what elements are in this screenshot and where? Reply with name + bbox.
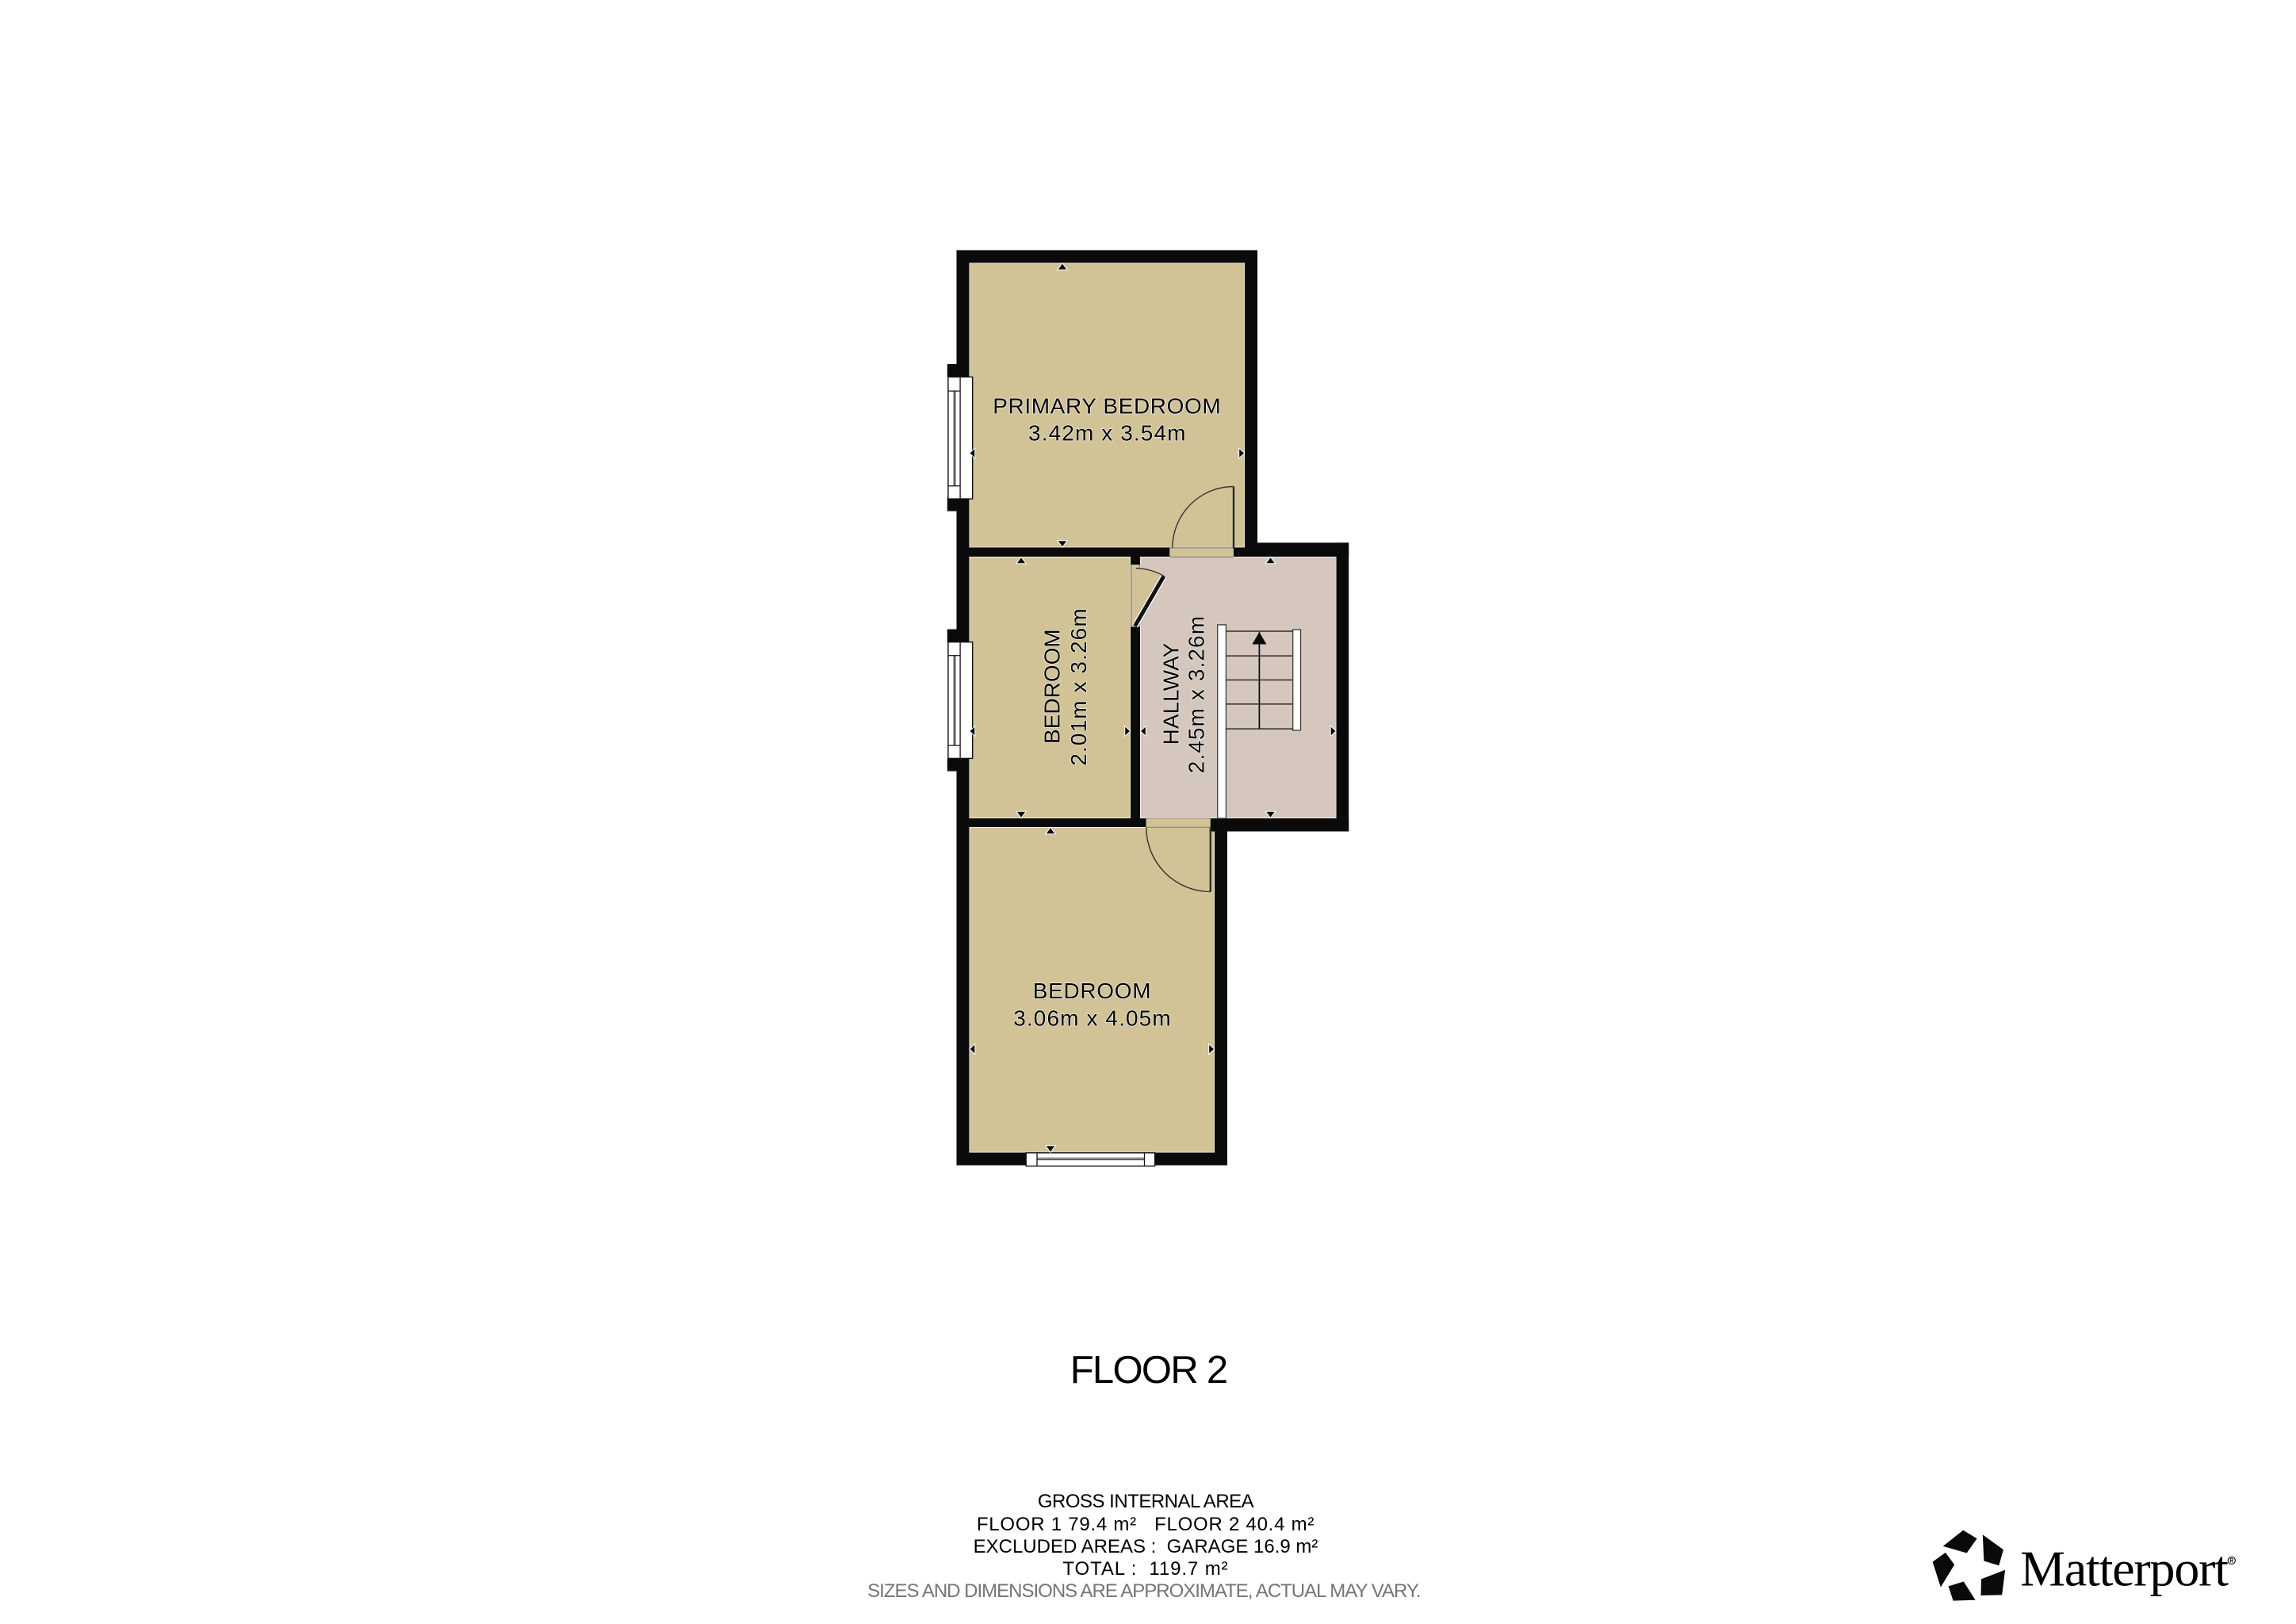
- svg-text:Matterport: Matterport: [2020, 1540, 2229, 1596]
- svg-text:SIZES AND DIMENSIONS ARE APPRO: SIZES AND DIMENSIONS ARE APPROXIMATE, AC…: [867, 1580, 1420, 1602]
- svg-text:GROSS INTERNAL AREA: GROSS INTERNAL AREA: [1038, 1491, 1254, 1512]
- svg-text:HALLWAY: HALLWAY: [1158, 642, 1183, 745]
- svg-text:FLOOR 2: FLOOR 2: [1070, 1349, 1227, 1392]
- svg-text:3.06m x 4.05m: 3.06m x 4.05m: [1013, 1006, 1172, 1031]
- svg-text:3.42m x 3.54m: 3.42m x 3.54m: [1028, 420, 1187, 445]
- svg-text:PRIMARY BEDROOM: PRIMARY BEDROOM: [993, 393, 1221, 418]
- svg-text:FLOOR 1 79.4 m² FLOOR 2 40.4: FLOOR 1 79.4 m² FLOOR 2 40.4 m²: [977, 1514, 1314, 1535]
- svg-text:BEDROOM: BEDROOM: [1033, 979, 1152, 1003]
- svg-text:TOTAL : 119.7 m²: TOTAL : 119.7 m²: [1062, 1558, 1228, 1580]
- svg-text:2.01m x 3.26m: 2.01m x 3.26m: [1066, 607, 1091, 766]
- svg-text:2.45m x 3.26m: 2.45m x 3.26m: [1184, 615, 1208, 774]
- svg-text:EXCLUDED AREAS : GARAGE 16.9: EXCLUDED AREAS : GARAGE 16.9 m²: [974, 1536, 1318, 1557]
- svg-text:BEDROOM: BEDROOM: [1039, 629, 1064, 744]
